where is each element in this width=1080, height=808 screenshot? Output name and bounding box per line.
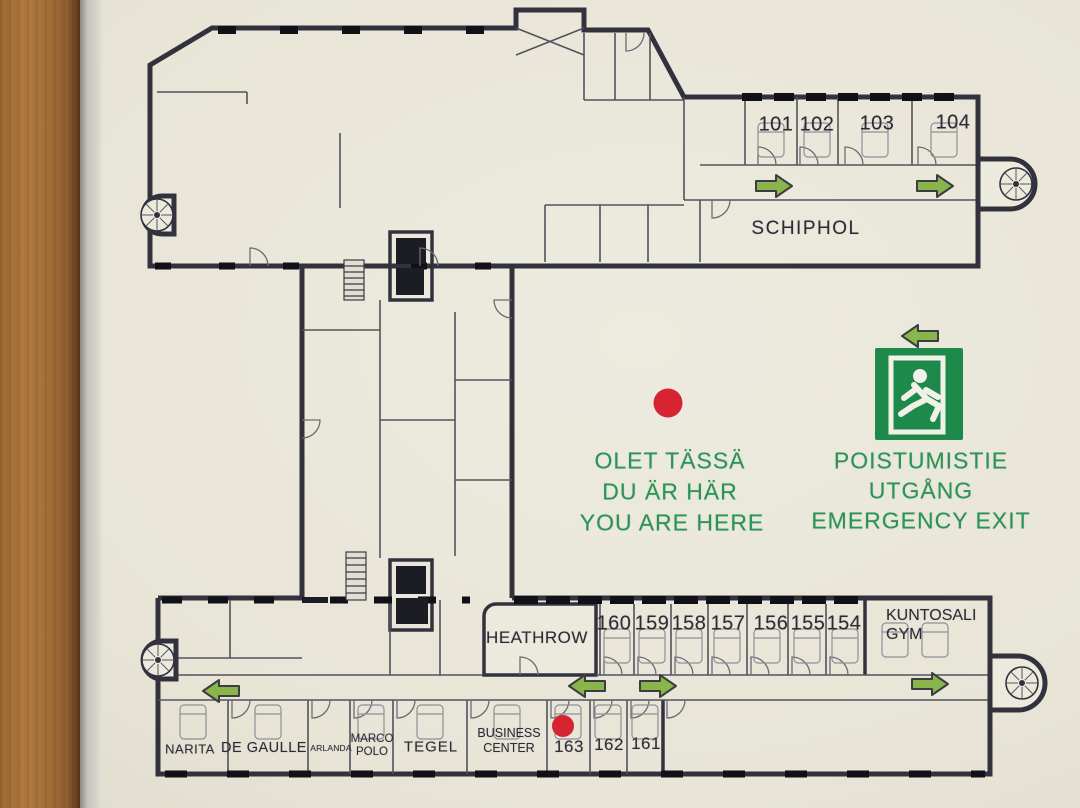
spiral-stair-bottom-right <box>1006 667 1038 699</box>
floorplan-drawing <box>0 0 1080 808</box>
arrow-left-icon <box>203 680 239 702</box>
room-label-tegel: TEGEL <box>404 739 458 756</box>
room-label-heathrow: HEATHROW <box>486 628 588 648</box>
room-label-de-gaulle: DE GAULLE <box>221 740 307 756</box>
spiral-stair-top-right <box>1000 168 1032 200</box>
arrow-right-icon <box>917 175 953 197</box>
room-label-160: 160 <box>597 613 632 636</box>
emergency-exit-sv: UTGÅNG <box>869 478 973 505</box>
room-label-gym: KUNTOSALI GYM <box>886 606 986 644</box>
room-label-163: 163 <box>554 737 584 757</box>
you-are-here-fi: OLET TÄSSÄ <box>594 448 745 475</box>
room-label-158: 158 <box>672 613 707 636</box>
arrow-left-icon <box>902 325 938 347</box>
room-label-business-center: BUSINESS CENTER <box>467 726 551 755</box>
you-are-here-sv: DU ÄR HÄR <box>602 479 738 506</box>
arrow-right-icon <box>640 675 676 697</box>
room-163-dot <box>552 715 574 737</box>
room-label-154: 154 <box>827 613 862 636</box>
room-label-156: 156 <box>754 613 789 636</box>
you-are-here-dot <box>654 389 683 418</box>
you-are-here-en: YOU ARE HERE <box>580 510 765 537</box>
room-label-104: 104 <box>936 112 971 135</box>
spiral-stair-bottom-left <box>142 644 174 676</box>
room-label-marco-polo: MARCO POLO <box>346 733 398 759</box>
room-label-161: 161 <box>631 734 661 754</box>
spiral-stair-top-left <box>141 199 173 231</box>
room-label-102: 102 <box>800 114 835 137</box>
room-label-155: 155 <box>791 613 826 636</box>
emergency-exit-sign-icon <box>875 348 963 440</box>
arrow-right-icon <box>756 175 792 197</box>
room-label-159: 159 <box>635 613 670 636</box>
room-label-narita: NARITA <box>165 742 215 757</box>
emergency-exit-en: EMERGENCY EXIT <box>811 508 1030 535</box>
arrow-left-icon <box>569 675 605 697</box>
room-label-103: 103 <box>860 113 895 136</box>
room-label-157: 157 <box>711 613 746 636</box>
room-label-101: 101 <box>759 114 794 137</box>
room-label-schiphol: SCHIPHOL <box>751 218 860 240</box>
stairs-icon <box>344 260 366 600</box>
room-label-162: 162 <box>594 735 624 755</box>
arrow-right-icon <box>912 673 948 695</box>
emergency-exit-fi: POISTUMISTIE <box>834 448 1008 475</box>
evacuation-plan-photo: 101 102 103 104 SCHIPHOL HEATHROW 160 15… <box>0 0 1080 808</box>
